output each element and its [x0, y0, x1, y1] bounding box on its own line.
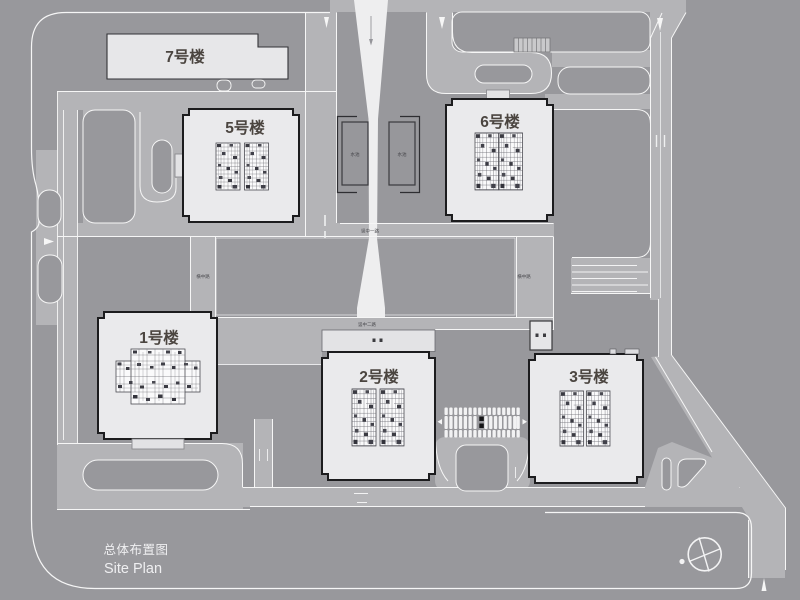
svg-text:7号楼: 7号楼 — [165, 47, 205, 66]
svg-text:横中路: 横中路 — [196, 273, 210, 280]
svg-text:竖中二路: 竖中二路 — [358, 321, 376, 328]
svg-text:水池: 水池 — [351, 151, 360, 157]
svg-text:水池: 水池 — [398, 151, 407, 157]
svg-text:竖中一路: 竖中一路 — [361, 228, 379, 235]
svg-text:Site Plan: Site Plan — [104, 561, 162, 577]
svg-text:2号楼: 2号楼 — [359, 367, 399, 386]
svg-text:6号楼: 6号楼 — [480, 112, 520, 131]
svg-text:3号楼: 3号楼 — [569, 367, 609, 386]
svg-text:5号楼: 5号楼 — [225, 118, 265, 137]
svg-text:总体布置图: 总体布置图 — [103, 543, 168, 557]
svg-text:1号楼: 1号楼 — [139, 328, 179, 347]
svg-text:横中路: 横中路 — [517, 273, 531, 280]
